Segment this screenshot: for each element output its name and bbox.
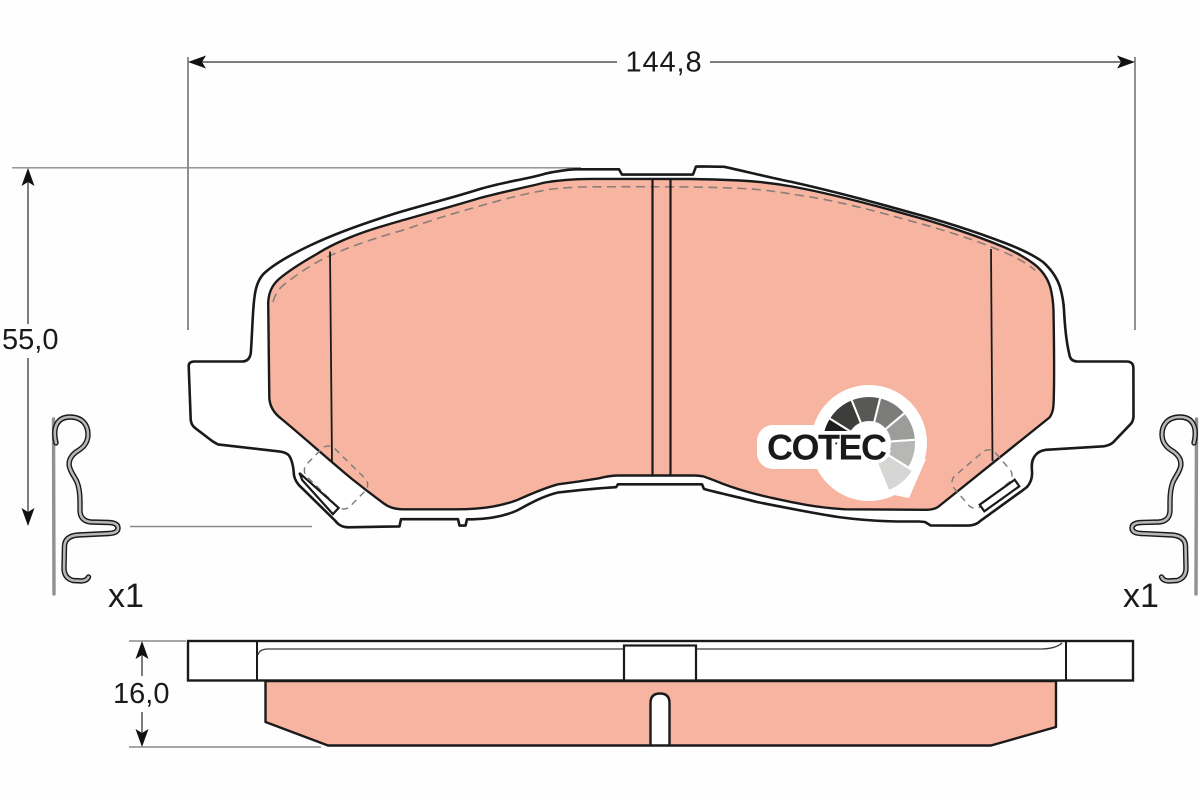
svg-text:COTEC: COTEC — [767, 427, 887, 468]
svg-text:55,0: 55,0 — [2, 324, 58, 356]
svg-text:x1: x1 — [108, 577, 144, 615]
svg-text:144,8: 144,8 — [625, 47, 702, 79]
svg-text:16,0: 16,0 — [113, 678, 169, 710]
svg-text:x1: x1 — [1123, 577, 1159, 615]
